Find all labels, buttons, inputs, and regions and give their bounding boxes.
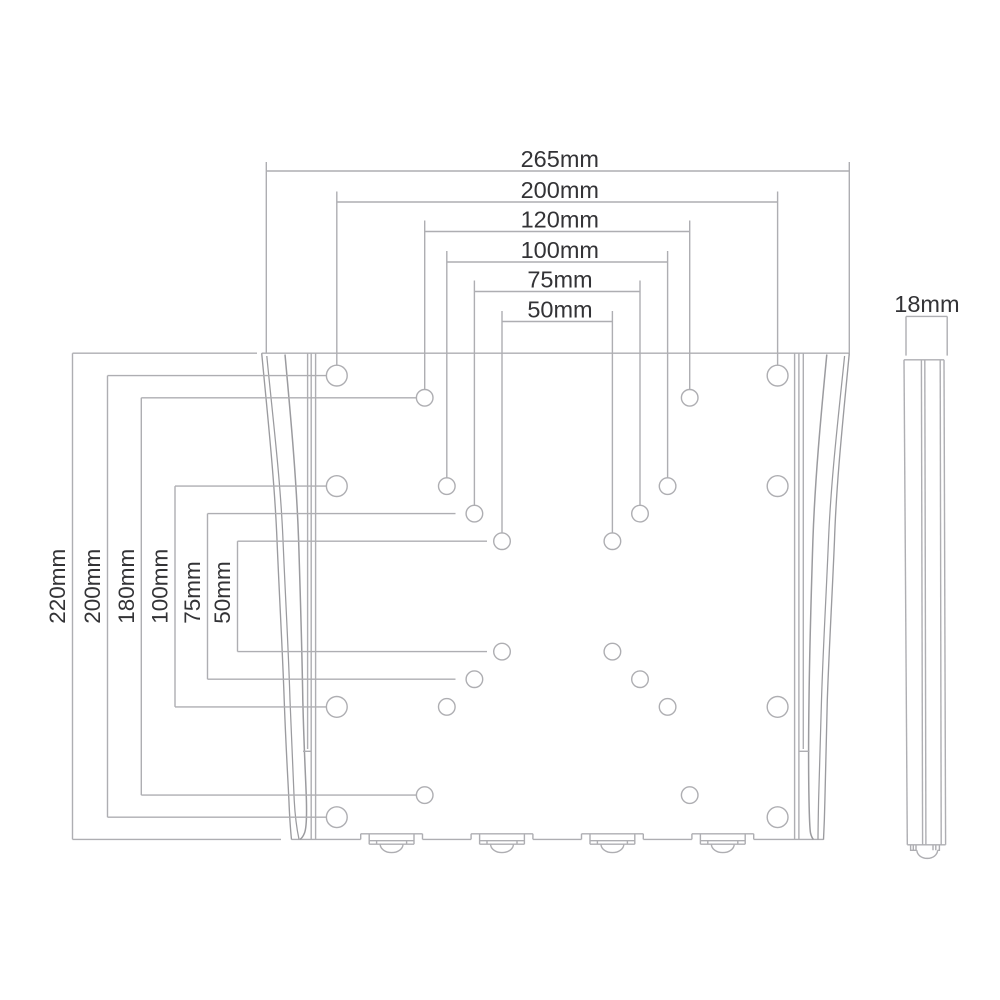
- svg-text:200mm: 200mm: [80, 549, 105, 624]
- svg-text:200mm: 200mm: [521, 177, 599, 203]
- svg-text:18mm: 18mm: [894, 291, 959, 317]
- svg-text:120mm: 120mm: [521, 207, 599, 233]
- svg-text:75mm: 75mm: [180, 561, 205, 624]
- svg-text:265mm: 265mm: [521, 146, 599, 172]
- svg-text:50mm: 50mm: [210, 561, 235, 624]
- svg-text:100mm: 100mm: [148, 549, 173, 624]
- svg-text:220mm: 220mm: [45, 549, 70, 624]
- svg-text:75mm: 75mm: [527, 267, 592, 293]
- svg-text:50mm: 50mm: [527, 297, 592, 323]
- svg-text:100mm: 100mm: [521, 237, 599, 263]
- svg-text:180mm: 180mm: [114, 549, 139, 624]
